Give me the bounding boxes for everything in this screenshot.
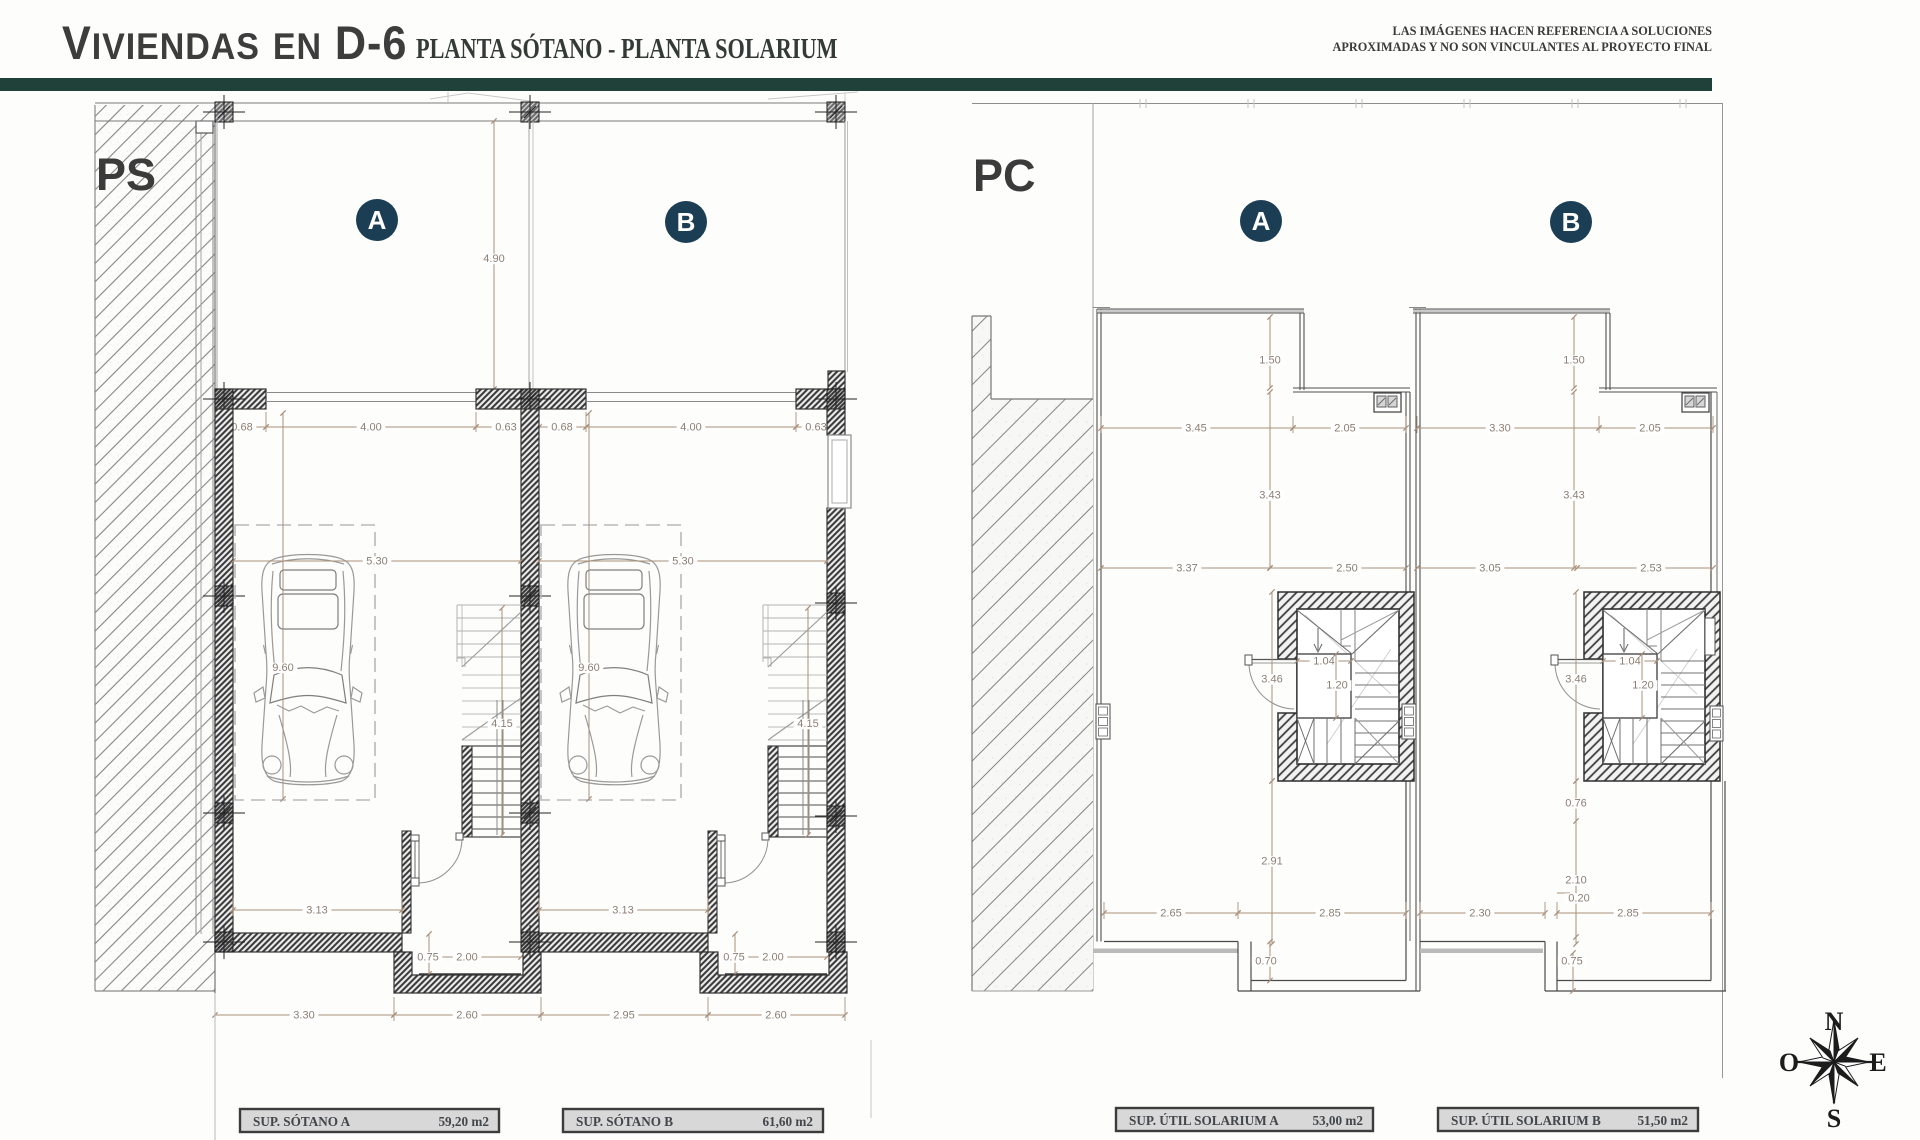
svg-text:0.75: 0.75 bbox=[417, 952, 438, 964]
svg-text:2.95: 2.95 bbox=[613, 1010, 634, 1022]
svg-text:5.30: 5.30 bbox=[672, 556, 693, 568]
svg-text:2.85: 2.85 bbox=[1319, 908, 1340, 920]
svg-text:1.20: 1.20 bbox=[1326, 680, 1347, 692]
svg-text:SUP. ÚTIL SOLARIUM B: SUP. ÚTIL SOLARIUM B bbox=[1451, 1113, 1601, 1128]
svg-text:59,20 m2: 59,20 m2 bbox=[438, 1114, 489, 1129]
svg-text:0.20: 0.20 bbox=[1568, 893, 1589, 905]
svg-text:4.00: 4.00 bbox=[680, 422, 701, 434]
svg-text:1.50: 1.50 bbox=[1259, 355, 1280, 367]
svg-text:5.30: 5.30 bbox=[366, 556, 387, 568]
svg-text:0.68: 0.68 bbox=[231, 422, 252, 434]
svg-text:2.60: 2.60 bbox=[765, 1010, 786, 1022]
svg-text:SUP. SÓTANO B: SUP. SÓTANO B bbox=[576, 1114, 673, 1129]
svg-text:0.63: 0.63 bbox=[805, 422, 826, 434]
svg-text:3.46: 3.46 bbox=[1565, 674, 1586, 686]
svg-text:2.50: 2.50 bbox=[1336, 563, 1357, 575]
svg-text:B: B bbox=[1562, 207, 1581, 237]
svg-text:3.45: 3.45 bbox=[1185, 423, 1206, 435]
svg-text:3.13: 3.13 bbox=[612, 905, 633, 917]
svg-text:O: O bbox=[1779, 1048, 1799, 1077]
svg-text:N: N bbox=[1825, 1007, 1844, 1036]
svg-text:2.30: 2.30 bbox=[1469, 908, 1490, 920]
svg-text:2.10: 2.10 bbox=[1565, 875, 1586, 887]
svg-text:B: B bbox=[677, 207, 696, 237]
svg-text:0.75: 0.75 bbox=[1561, 956, 1582, 968]
svg-text:0.68: 0.68 bbox=[551, 422, 572, 434]
svg-text:2.60: 2.60 bbox=[456, 1010, 477, 1022]
svg-text:3.43: 3.43 bbox=[1259, 490, 1280, 502]
svg-text:0.63: 0.63 bbox=[495, 422, 516, 434]
svg-text:1.04: 1.04 bbox=[1619, 656, 1640, 668]
svg-text:2.00: 2.00 bbox=[762, 952, 783, 964]
svg-text:3.46: 3.46 bbox=[1261, 674, 1282, 686]
svg-text:53,00 m2: 53,00 m2 bbox=[1312, 1113, 1363, 1128]
svg-text:3.13: 3.13 bbox=[306, 905, 327, 917]
svg-text:LAS IMÁGENES HACEN REFERENCIA: LAS IMÁGENES HACEN REFERENCIA A SOLUCION… bbox=[1393, 24, 1713, 38]
svg-text:2.53: 2.53 bbox=[1640, 563, 1661, 575]
svg-text:0.75: 0.75 bbox=[723, 952, 744, 964]
svg-text:9.60: 9.60 bbox=[578, 662, 599, 674]
svg-text:3.05: 3.05 bbox=[1479, 563, 1500, 575]
svg-text:APROXIMADAS Y NO SON VINCULANT: APROXIMADAS Y NO SON VINCULANTES AL PROY… bbox=[1332, 40, 1712, 54]
svg-text:PS: PS bbox=[96, 149, 156, 200]
svg-text:1.50: 1.50 bbox=[1563, 355, 1584, 367]
svg-text:SUP. SÓTANO A: SUP. SÓTANO A bbox=[253, 1114, 351, 1129]
svg-text:61,60 m2: 61,60 m2 bbox=[762, 1114, 813, 1129]
svg-text:1.20: 1.20 bbox=[1632, 680, 1653, 692]
svg-text:0.70: 0.70 bbox=[1255, 956, 1276, 968]
svg-text:2.65: 2.65 bbox=[1160, 908, 1181, 920]
svg-text:1.04: 1.04 bbox=[1313, 656, 1334, 668]
svg-text:4.90: 4.90 bbox=[483, 253, 504, 265]
svg-text:9.60: 9.60 bbox=[272, 662, 293, 674]
svg-text:A: A bbox=[1252, 206, 1271, 236]
svg-text:2.00: 2.00 bbox=[456, 952, 477, 964]
svg-text:PC: PC bbox=[973, 150, 1036, 201]
svg-text:4.15: 4.15 bbox=[491, 718, 512, 730]
svg-text:SUP. ÚTIL SOLARIUM A: SUP. ÚTIL SOLARIUM A bbox=[1129, 1113, 1279, 1128]
svg-text:E: E bbox=[1869, 1048, 1886, 1077]
svg-text:3.30: 3.30 bbox=[1489, 423, 1510, 435]
svg-text:3.43: 3.43 bbox=[1563, 490, 1584, 502]
svg-text:3.30: 3.30 bbox=[293, 1010, 314, 1022]
svg-text:4.00: 4.00 bbox=[360, 422, 381, 434]
svg-text:S: S bbox=[1827, 1104, 1841, 1133]
svg-text:2.05: 2.05 bbox=[1639, 423, 1660, 435]
svg-text:4.15: 4.15 bbox=[797, 718, 818, 730]
svg-text:PLANTA SÓTANO - PLANTA SOLARIU: PLANTA SÓTANO - PLANTA SOLARIUM bbox=[416, 34, 838, 65]
svg-text:3.37: 3.37 bbox=[1176, 563, 1197, 575]
svg-text:0.76: 0.76 bbox=[1565, 798, 1586, 810]
svg-text:2.85: 2.85 bbox=[1617, 908, 1638, 920]
svg-text:A: A bbox=[368, 205, 387, 235]
svg-text:2.05: 2.05 bbox=[1334, 423, 1355, 435]
svg-text:51,50 m2: 51,50 m2 bbox=[1637, 1113, 1688, 1128]
svg-text:2.91: 2.91 bbox=[1261, 856, 1282, 868]
